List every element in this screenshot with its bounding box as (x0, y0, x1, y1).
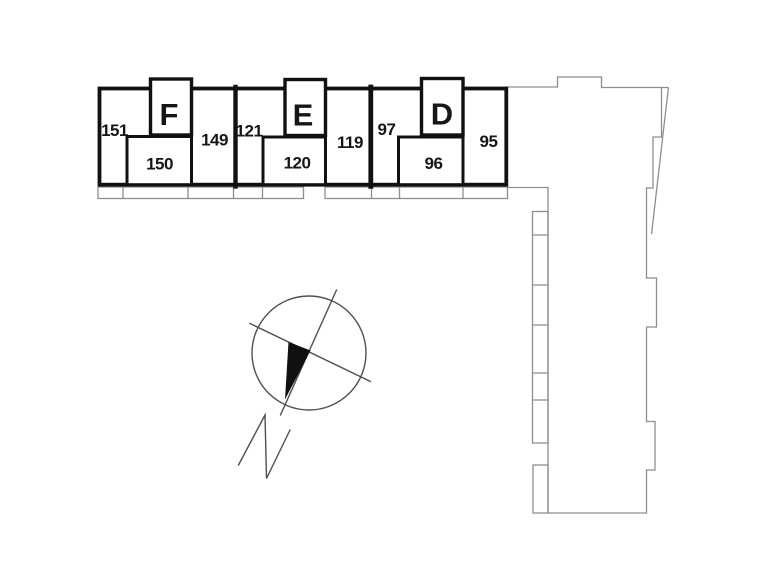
unit-97-label: 97 (378, 120, 396, 139)
unit-151-label: 151 (101, 121, 128, 140)
neighbor-building-balconies (533, 212, 549, 514)
neighbor-building-slanted-edge (652, 89, 669, 234)
block-F-label: F (160, 97, 179, 132)
neighbor-building-outline (507, 77, 668, 513)
unit-149-label: 149 (201, 131, 228, 150)
site-plan-drawing: 151 F 150 149 121 E 120 119 97 D 96 95 (0, 0, 772, 580)
unit-96-label: 96 (425, 154, 443, 173)
block-E-label: E (293, 98, 314, 133)
unit-95-label: 95 (480, 132, 498, 151)
compass-needle (285, 342, 311, 400)
neighbor-building-top-edge (507, 77, 668, 88)
unit-121-label: 121 (236, 122, 263, 141)
north-letter (239, 415, 291, 479)
compass-rose (239, 290, 371, 479)
block-D-label: D (431, 97, 453, 132)
patio-strip-right (325, 187, 508, 199)
patio-strip-left-dividers (123, 187, 263, 199)
neighbor-building-body (508, 88, 662, 514)
patio-strip-left (98, 187, 304, 199)
compass-axis-w-e (250, 324, 371, 382)
unit-150-label: 150 (146, 155, 173, 174)
site-plan-page: 151 F 150 149 121 E 120 119 97 D 96 95 (0, 0, 772, 580)
unit-119-label: 119 (337, 133, 363, 152)
patio-strip (98, 187, 508, 199)
unit-120-label: 120 (284, 154, 311, 173)
patio-strip-right-dividers (372, 187, 464, 199)
